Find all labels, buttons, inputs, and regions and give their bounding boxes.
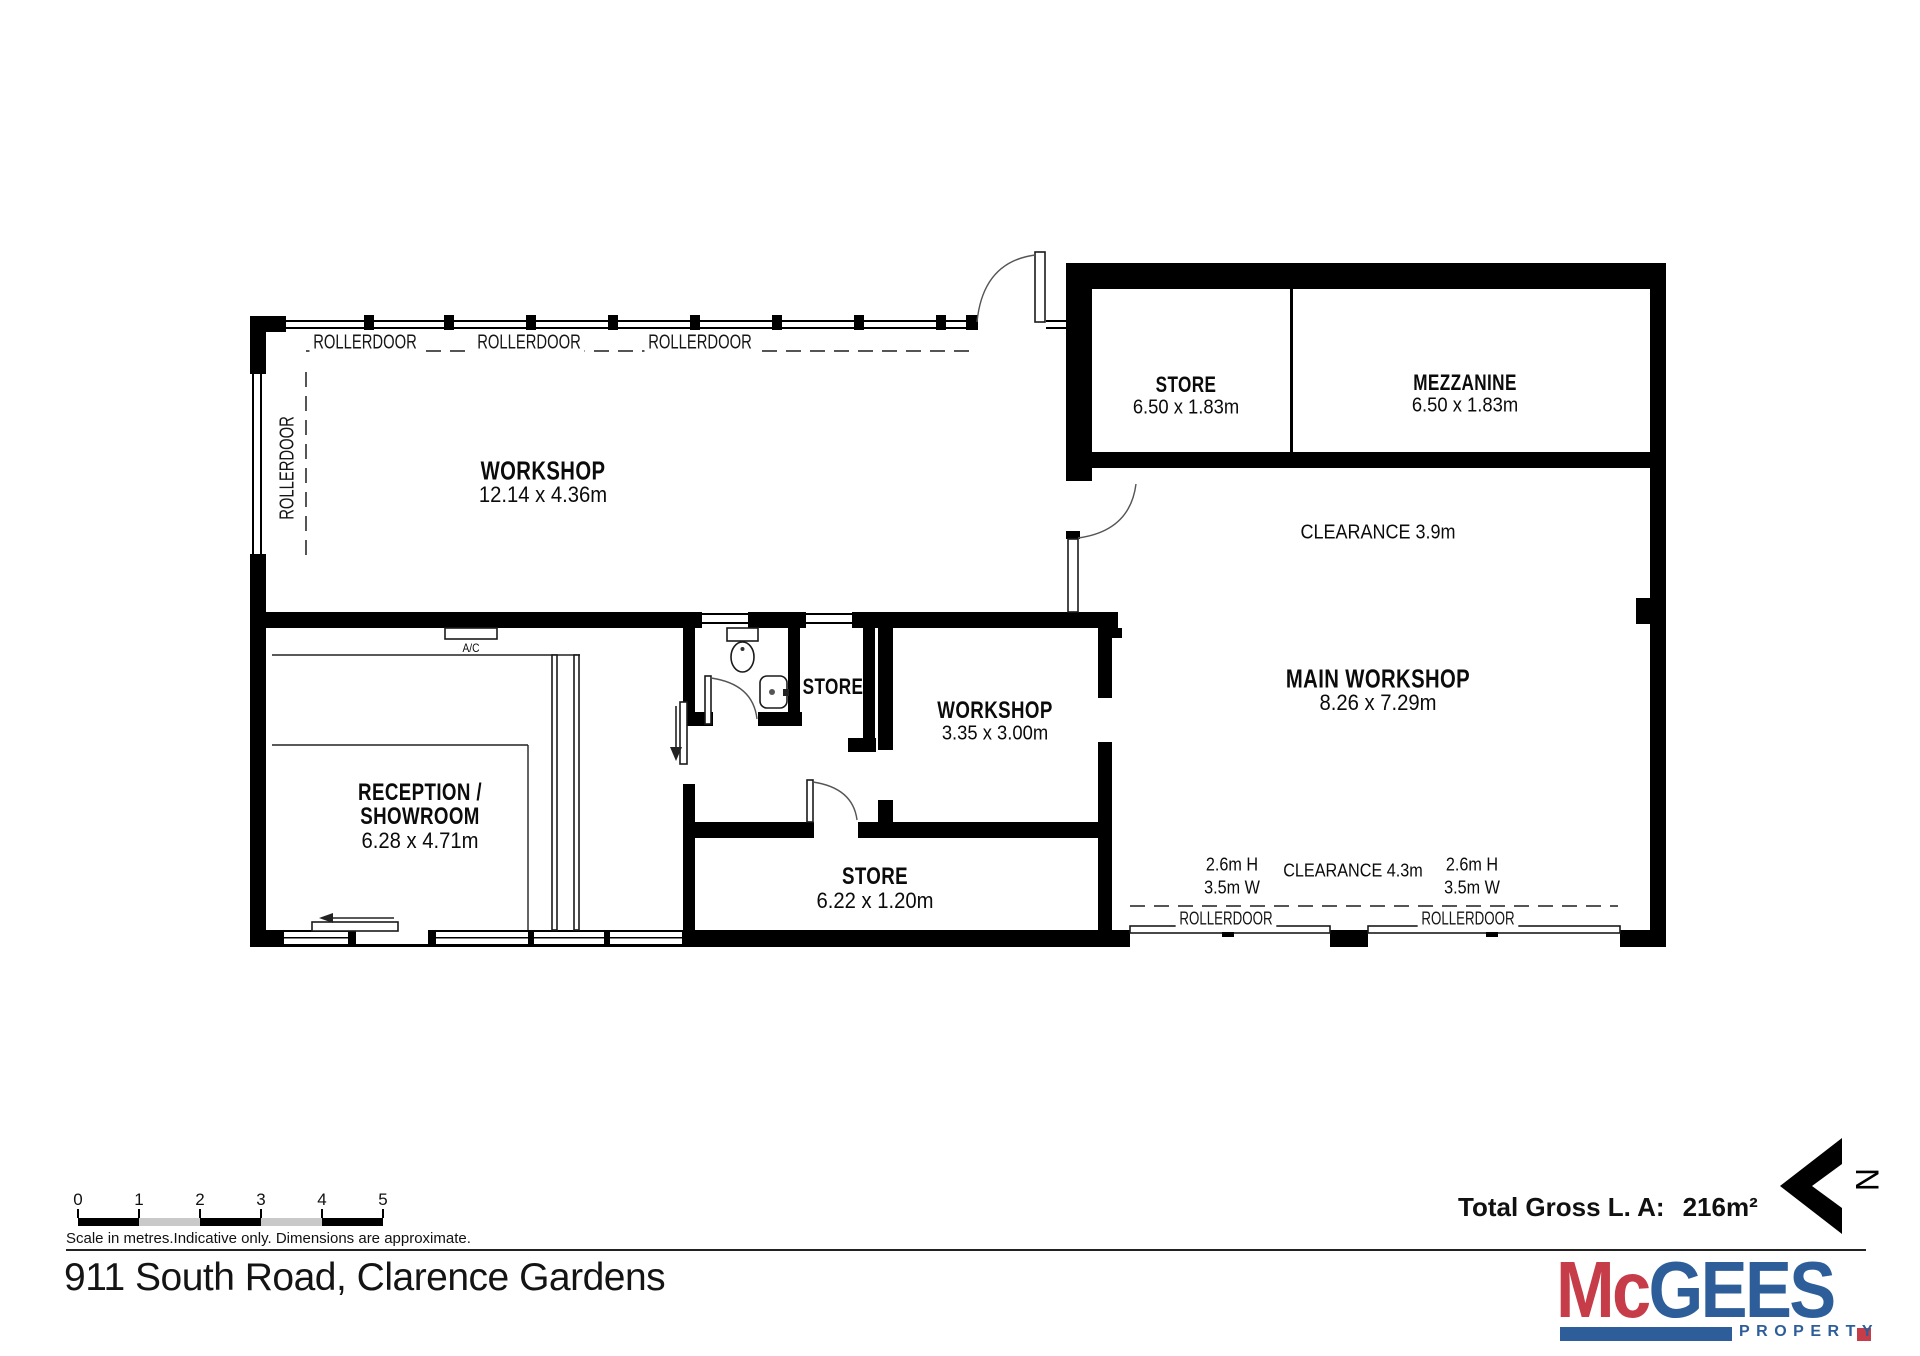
- scale-tick-4: 4: [317, 1190, 326, 1210]
- room-label-store-middle: STORE: [803, 674, 864, 700]
- room-dims-reception: 6.28 x 4.71m: [361, 828, 478, 854]
- rollerdoor-label-top-1: ROLLERDOOR: [309, 332, 420, 355]
- logo-tagline: PROPERTY: [1739, 1323, 1879, 1341]
- rollerdoor-label-top-2: ROLLERDOOR: [473, 332, 584, 355]
- total-area: Total Gross L. A: 216m²: [1458, 1192, 1758, 1223]
- room-dims-mezzanine: 6.50 x 1.83m: [1412, 395, 1518, 418]
- door-left-height: 2.6m H: [1206, 855, 1258, 876]
- total-area-value: 216m²: [1683, 1192, 1758, 1223]
- scale-tick-1: 1: [134, 1190, 143, 1210]
- sink-icon: [760, 676, 789, 708]
- scale-bar: [77, 1209, 384, 1226]
- clearance-lower-label: CLEARANCE 4.3m: [1283, 861, 1423, 882]
- total-area-label: Total Gross L. A:: [1458, 1192, 1665, 1223]
- clearance-upper-label: CLEARANCE 3.9m: [1300, 522, 1455, 545]
- door-left-width: 3.5m W: [1204, 878, 1260, 899]
- room-label-reception-2: SHOWROOM: [360, 803, 480, 831]
- logo-part-gees: GEES: [1649, 1245, 1834, 1334]
- room-label-workshop-middle: WORKSHOP: [937, 697, 1052, 725]
- scale-tick-2: 2: [195, 1190, 204, 1210]
- rollerdoor-label-top-3: ROLLERDOOR: [644, 332, 755, 355]
- scale-tick-5: 5: [378, 1190, 387, 1210]
- logo-part-mc: Mc: [1556, 1245, 1649, 1334]
- shopfront-windows: [284, 930, 682, 947]
- door-right-width: 3.5m W: [1444, 878, 1500, 899]
- room-label-store-bottom: STORE: [842, 863, 908, 891]
- floorplan-drawing: N: [0, 0, 1920, 1356]
- floorplan-page: N WORKSHOP 12.14 x 4.36m STORE 6.50 x 1.…: [0, 0, 1920, 1356]
- right-building-walls: [1066, 263, 1666, 947]
- north-arrow-icon: N: [1780, 1138, 1885, 1234]
- room-dims-workshop-top: 12.14 x 4.36m: [479, 482, 607, 508]
- room-dims-main-workshop: 8.26 x 7.29m: [1319, 690, 1436, 716]
- rollerdoor-label-left: ROLLERDOOR: [277, 413, 300, 523]
- room-dims-store-bottom: 6.22 x 1.20m: [816, 888, 933, 914]
- scale-caption: Scale in metres.Indicative only. Dimensi…: [66, 1230, 471, 1247]
- rollerdoor-label-bottom-2: ROLLERDOOR: [1418, 909, 1519, 930]
- ac-label: A/C: [462, 641, 479, 655]
- rollerdoor-guides: [306, 351, 974, 556]
- room-label-store-top: STORE: [1156, 372, 1217, 398]
- scale-tick-0: 0: [73, 1190, 82, 1210]
- room-dims-workshop-middle: 3.35 x 3.00m: [942, 723, 1048, 746]
- room-label-mezzanine: MEZZANINE: [1413, 370, 1517, 396]
- ac-unit: [445, 628, 497, 639]
- north-letter: N: [1849, 1168, 1885, 1191]
- scale-tick-3: 3: [256, 1190, 265, 1210]
- page-title: 911 South Road, Clarence Gardens: [64, 1256, 665, 1300]
- rollerdoor-label-bottom-1: ROLLERDOOR: [1176, 909, 1277, 930]
- mcgees-logo: McGEES: [1556, 1250, 1834, 1330]
- toilet-icon: [727, 628, 758, 672]
- sliding-entry-door: [312, 913, 428, 947]
- door-right-height: 2.6m H: [1446, 855, 1498, 876]
- room-dims-store-top: 6.50 x 1.83m: [1133, 397, 1239, 420]
